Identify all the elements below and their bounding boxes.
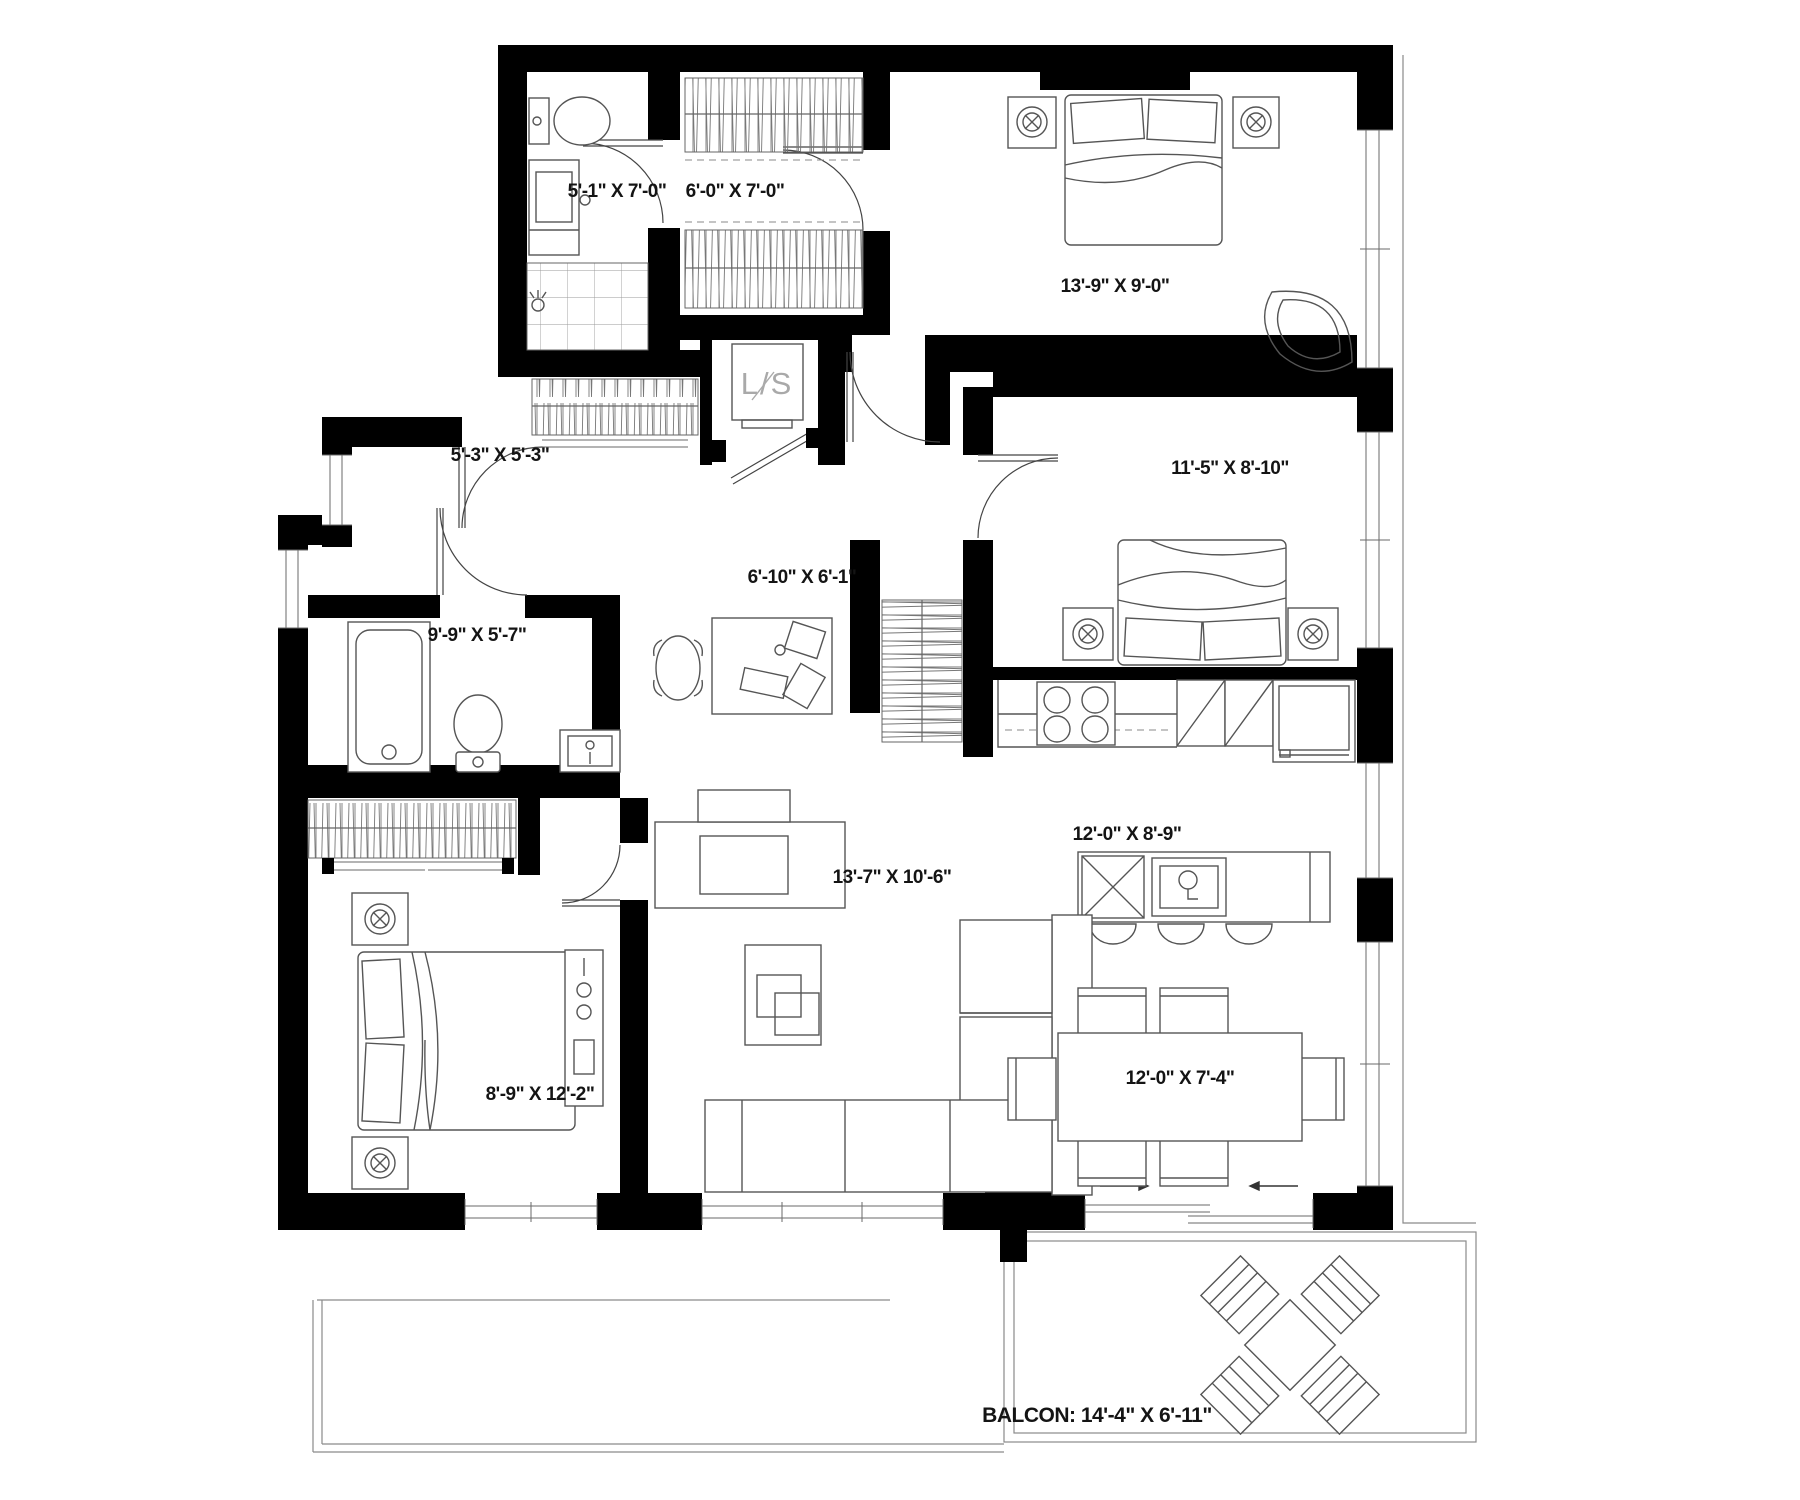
room-label-den: 6'-10" X 6'-1" (748, 567, 857, 588)
kitchen-fixtures (998, 680, 1355, 944)
window-bedroom2 (1357, 432, 1393, 648)
window-living (702, 1199, 943, 1225)
room-label-bedroom3: 8'-9" X 12'-2" (486, 1084, 595, 1105)
room-label-closet-top: 6'-0" X 7'-0" (686, 181, 785, 202)
room-label-living: 13'-7" X 10'-6" (833, 867, 952, 888)
closet-top-door (783, 147, 863, 230)
room-label-bathroom-top: 5'-1" X 7'-0" (568, 181, 667, 202)
room-label-entry: 5'-3" X 5'-3" (451, 445, 550, 466)
sliding-door-balcony (1085, 1182, 1313, 1230)
laundry-closet: L/S (732, 344, 803, 428)
bedroom3-door (562, 845, 620, 906)
tall-cabinets (1177, 680, 1273, 746)
bed-double (1118, 540, 1286, 665)
bedroom2-furniture (1063, 540, 1338, 665)
roof-projection-line (1403, 55, 1476, 1223)
stove (1037, 682, 1115, 745)
bathroom-top-fixtures (527, 97, 648, 350)
window-entry (322, 455, 352, 525)
window-bedroom3 (465, 1199, 597, 1225)
floor-plan-drawing: L/S (0, 0, 1800, 1500)
laundry-label: L/S (741, 366, 794, 401)
floor-plan-page: L/S (0, 0, 1800, 1500)
room-label-bedroom2: 11'-5" X 8'-10" (1171, 458, 1289, 479)
bed-double (1065, 95, 1222, 245)
room-label-bedroom1: 13'-9" X 9'-0" (1061, 276, 1170, 297)
bedroom3-closet (308, 800, 516, 874)
hall-closet (532, 379, 698, 447)
island-stools (1090, 924, 1272, 944)
bedroom1-furniture (1008, 95, 1352, 371)
room-label-balcony: BALCON: 14'-4" X 6'-11" (982, 1404, 1212, 1427)
nightstand-lamp (352, 893, 408, 945)
sink-2 (560, 730, 620, 772)
fridge (1273, 680, 1355, 762)
window-kitchen (1357, 763, 1393, 878)
toilet-2 (454, 695, 502, 772)
window-bath2 (278, 550, 308, 628)
nesting-tables (745, 945, 821, 1045)
tv-media-unit (655, 790, 845, 908)
laundry-door (712, 428, 822, 484)
window-bedroom1 (1357, 130, 1393, 368)
kitchen-island (1078, 852, 1330, 922)
nightstand-lamp (1063, 608, 1113, 660)
window-dining (1357, 942, 1393, 1186)
nightstand-lamp (1008, 97, 1056, 148)
desk-chair (654, 636, 703, 700)
terrace-outline (313, 1300, 1004, 1452)
den-closet (882, 600, 962, 742)
shower-top (527, 263, 648, 350)
den-furniture (654, 618, 832, 714)
sink-top (529, 160, 590, 255)
bathtub (348, 622, 430, 772)
nightstand-lamp (1288, 608, 1338, 660)
room-label-bathroom2: 9'-9" X 5'-7" (428, 625, 527, 646)
room-label-dining: 12'-0" X 7'-4" (1126, 1068, 1235, 1089)
toilet-top (529, 97, 610, 145)
bathroom2-door (437, 508, 527, 595)
nightstand-lamp (1233, 97, 1279, 148)
console-left (565, 950, 603, 1106)
nightstand-lamp (352, 1137, 408, 1189)
room-label-kitchen: 12'-0" X 8'-9" (1073, 824, 1182, 845)
bedroom3-furniture (352, 893, 575, 1189)
